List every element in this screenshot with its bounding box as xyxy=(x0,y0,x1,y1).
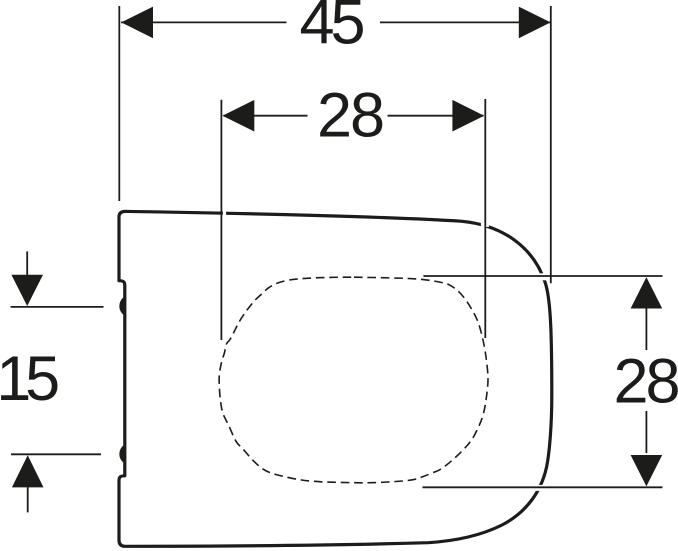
svg-text:28: 28 xyxy=(317,80,385,150)
svg-text:28: 28 xyxy=(614,347,678,417)
svg-text:15: 15 xyxy=(0,344,60,414)
svg-text:45: 45 xyxy=(300,0,366,57)
